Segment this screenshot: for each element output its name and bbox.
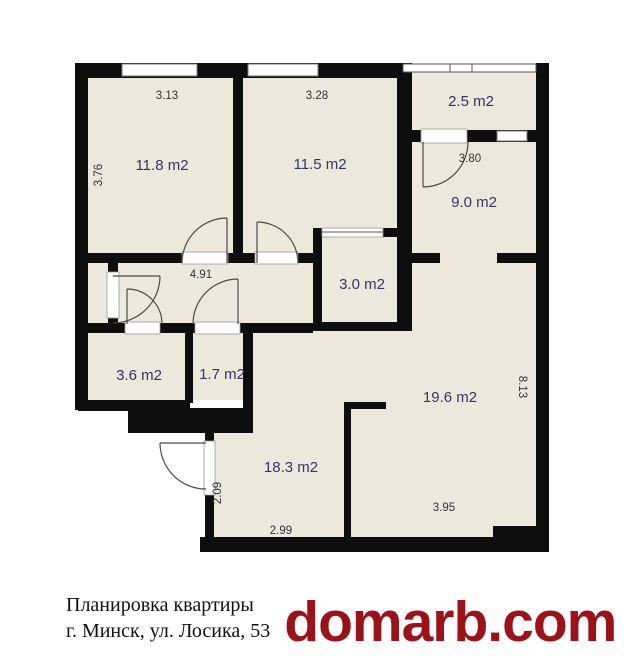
room-area-label: 3.6 m2 [116,367,162,384]
room-area-label: 2.5 m2 [448,93,494,110]
wall [128,408,253,433]
plan-title: Планировка квартиры [66,592,270,618]
room-area-label: 3.0 m2 [339,276,385,293]
room-area-label: 19.6 m2 [423,389,477,406]
wall [344,402,351,537]
dimension-label: 3.13 [156,90,178,102]
dimension-label: 2.09 [212,482,224,504]
wall [313,322,412,331]
dimension-label: 3.95 [433,502,455,514]
watermark-logo: domarb.com [284,594,616,651]
door-opening [107,272,119,318]
dimension-label: 3.76 [93,164,105,186]
wall [493,526,543,546]
wall [313,228,322,331]
dimension-label: 4.91 [190,269,212,281]
room-area-label: 11.5 m2 [293,156,346,173]
dimension-label: 2.99 [270,525,292,537]
door-opening [125,322,160,334]
wall [344,402,386,409]
door-opening [182,252,228,264]
balcony-glazing [403,64,536,72]
plan-address: г. Минск, ул. Лосика, 53 [66,618,270,644]
wall [536,63,549,552]
room-area-label: 11.8 m2 [135,157,188,174]
footer: Планировка квартиры г. Минск, ул. Лосика… [66,592,626,651]
dimension-label: 8.13 [516,376,528,398]
plan-caption: Планировка квартиры г. Минск, ул. Лосика… [66,592,270,645]
floor-plan-page: 11.8 m2 11.5 m2 2.5 m2 9.0 m2 3.0 m2 3.6… [0,0,630,672]
wall [412,253,440,263]
room-area-label: 1.7 m2 [199,366,245,383]
door-opening [195,322,240,334]
wall [397,63,412,331]
room-area-label: 9.0 m2 [451,194,497,211]
dimension-label: 3.28 [306,90,328,102]
wall [497,253,536,263]
door-opening [255,252,298,264]
wall [75,63,88,410]
room-area-label: 18.3 m2 [264,459,318,476]
floor-plan: 11.8 m2 11.5 m2 2.5 m2 9.0 m2 3.0 m2 3.6… [0,0,630,672]
wall [233,78,243,258]
door-opening [421,129,467,143]
entrance-door-arc [160,443,206,489]
window [497,131,527,141]
window [122,64,197,76]
wall [185,333,193,403]
dimension-label: 3.80 [459,153,481,165]
window [248,64,318,76]
